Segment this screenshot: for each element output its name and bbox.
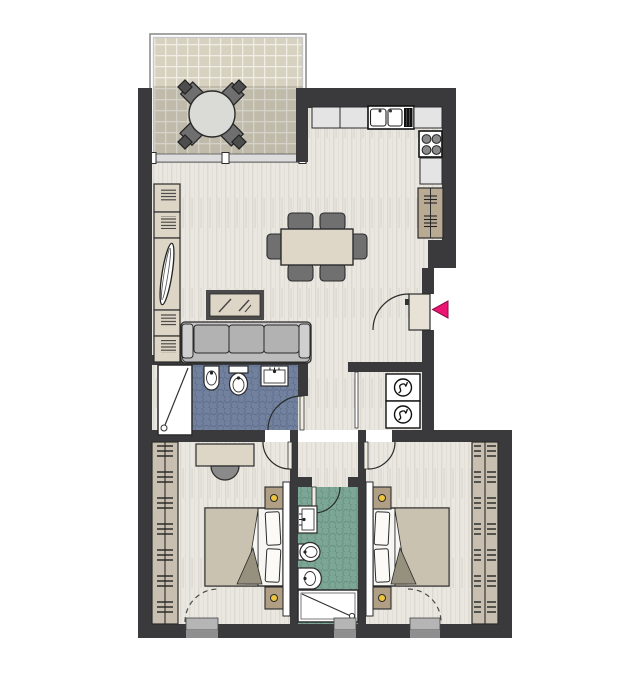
faucet-icon (389, 110, 392, 113)
threshold-upper (334, 618, 356, 630)
pillow (265, 549, 281, 583)
sofa-cushion (194, 325, 229, 353)
washer-body (386, 374, 420, 401)
ensuite-shower (298, 590, 358, 622)
dryer-body (386, 401, 420, 428)
dryer (386, 401, 420, 428)
desk (196, 444, 254, 466)
wardrobe-hanger-marks (474, 444, 496, 622)
lamp-icon (271, 595, 278, 602)
bathroom-ensuite (298, 487, 358, 624)
washing-machine (386, 374, 420, 401)
books (157, 314, 176, 327)
lamp-icon (271, 495, 278, 502)
sofa (181, 322, 311, 363)
bathroom-main (158, 365, 304, 435)
kitchen-counter (340, 107, 368, 128)
pillow (374, 549, 390, 583)
sink-bowl (371, 109, 387, 126)
kitchen-counter (414, 107, 442, 128)
bed-left (205, 508, 283, 586)
kitchen-tall-cabinet (418, 188, 443, 238)
wall-left (138, 88, 152, 638)
wall-balcony-kitchen-stub (296, 88, 308, 162)
headboard-panel-left (283, 482, 290, 616)
shower-drain-icon (161, 425, 167, 431)
entrance-arrow-icon (433, 301, 449, 318)
faucet-icon (379, 110, 382, 113)
dining-chair (320, 264, 345, 281)
faucet-icon (302, 518, 305, 521)
kitchen-sink-unit (368, 106, 414, 129)
sofa-cushion (229, 325, 264, 353)
bed-right (373, 508, 449, 586)
lamp-icon (379, 495, 386, 502)
threshold-lower (410, 630, 440, 638)
dining-chair (320, 213, 345, 230)
door-handle (405, 299, 409, 305)
kitchen-stove (419, 131, 442, 157)
wardrobe-right (472, 442, 498, 624)
toilet-tank (229, 366, 248, 373)
faucet-icon (273, 370, 276, 373)
wardrobe-left (152, 442, 178, 624)
dining-table (281, 229, 353, 265)
coffee-table-glass (210, 294, 260, 316)
entrance-door-leaf (409, 294, 430, 330)
headboard-panel-right (366, 482, 373, 616)
bedroom-right-door-leaf (364, 442, 368, 469)
balcony-round-table (189, 91, 235, 137)
dining-chair (288, 213, 313, 230)
wall-bath2-right (358, 477, 366, 624)
wall-jog (428, 240, 456, 268)
kitchen-counter (312, 107, 340, 128)
threshold-upper (186, 618, 218, 630)
books (157, 340, 176, 353)
sofa-armrest (182, 324, 193, 358)
threshold-lower (334, 630, 356, 638)
bathroom-sink (261, 366, 288, 386)
ensuite-sink (298, 506, 317, 533)
wall-right-bedrooms (498, 430, 512, 638)
floor-plan-canvas (0, 0, 642, 699)
threshold-upper (410, 618, 440, 630)
balcony (150, 34, 306, 162)
wall-utility-top (348, 362, 422, 372)
books (157, 216, 176, 229)
kitchen-counter-side (420, 158, 442, 184)
sink-drainer (404, 108, 413, 127)
bookshelf-wall-units (154, 184, 180, 362)
floor-plan-svg (0, 0, 642, 699)
pillow (265, 512, 281, 546)
coffee-table (206, 290, 264, 320)
stove-burner-icon (432, 135, 441, 144)
sofa-armrest (299, 324, 310, 358)
wall-kitchen-right (442, 108, 456, 240)
toilet (229, 366, 248, 395)
books (157, 188, 176, 201)
ensuite-bidet (298, 568, 321, 589)
balcony-window-wall (149, 153, 306, 164)
shower (158, 365, 192, 435)
stove-burner-icon (422, 146, 431, 155)
window-mullion (222, 153, 229, 164)
wall-entrance-lower (422, 330, 434, 430)
wall-bath2-left (290, 477, 298, 624)
sofa-cushion (264, 325, 299, 353)
ensuite-toilet (298, 543, 320, 562)
pillow (374, 512, 390, 546)
utility-closet-door (355, 372, 358, 428)
stove-burner-icon (422, 135, 431, 144)
lamp-icon (379, 595, 386, 602)
bidet (204, 366, 219, 390)
bathroom-main-door-leaf (300, 396, 304, 430)
wardrobe-hanger-marks (154, 444, 176, 622)
wall-bedrooms-top-left (138, 430, 265, 442)
wall-top-kitchen (296, 88, 456, 108)
wall-bedrooms-top-right (392, 430, 512, 442)
stove-burner-icon (432, 146, 441, 155)
dining-chair (288, 264, 313, 281)
threshold-lower (186, 630, 218, 638)
bedroom-left-door-leaf (288, 442, 292, 469)
wall-entrance-upper (422, 268, 434, 294)
